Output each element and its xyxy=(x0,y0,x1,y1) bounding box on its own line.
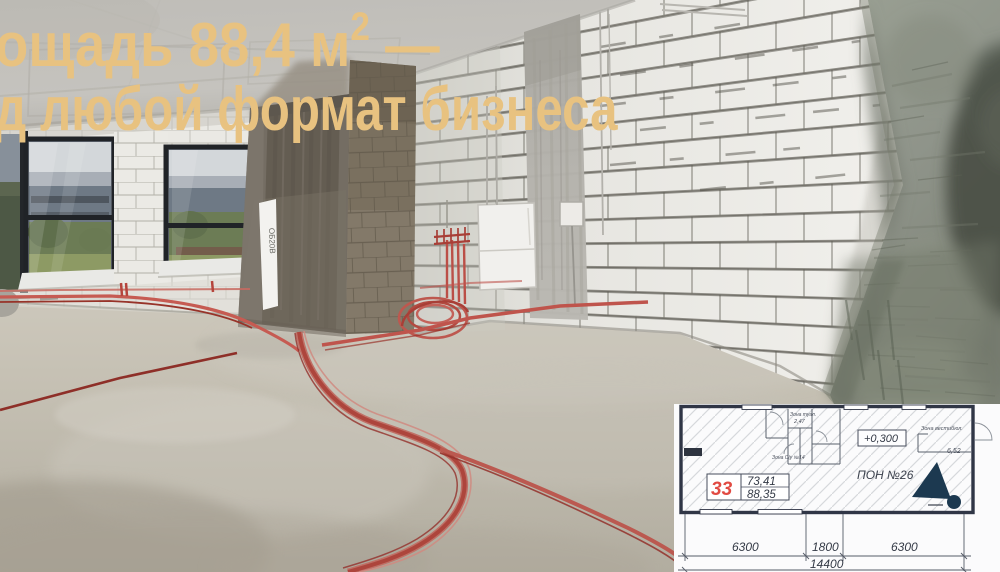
svg-text:6,52: 6,52 xyxy=(947,448,961,455)
svg-text:Зона туал.: Зона туал. xyxy=(790,412,816,418)
svg-text:Зона вестибюл.: Зона вестибюл. xyxy=(921,426,963,432)
svg-text:+0,300: +0,300 xyxy=(864,433,899,445)
svg-text:6300: 6300 xyxy=(732,540,759,554)
svg-text:Зона С/у №14: Зона С/у №14 xyxy=(772,455,805,461)
svg-text:6300: 6300 xyxy=(891,540,918,554)
svg-text:14400: 14400 xyxy=(810,557,844,571)
svg-text:1800: 1800 xyxy=(812,540,839,554)
svg-text:33: 33 xyxy=(711,479,733,500)
svg-text:88,35: 88,35 xyxy=(747,489,776,501)
svg-text:73,41: 73,41 xyxy=(747,476,776,488)
svg-text:ОБ20В: ОБ20В xyxy=(267,228,277,254)
svg-text:ПОН №26: ПОН №26 xyxy=(857,468,914,482)
svg-text:2,47: 2,47 xyxy=(793,419,806,425)
